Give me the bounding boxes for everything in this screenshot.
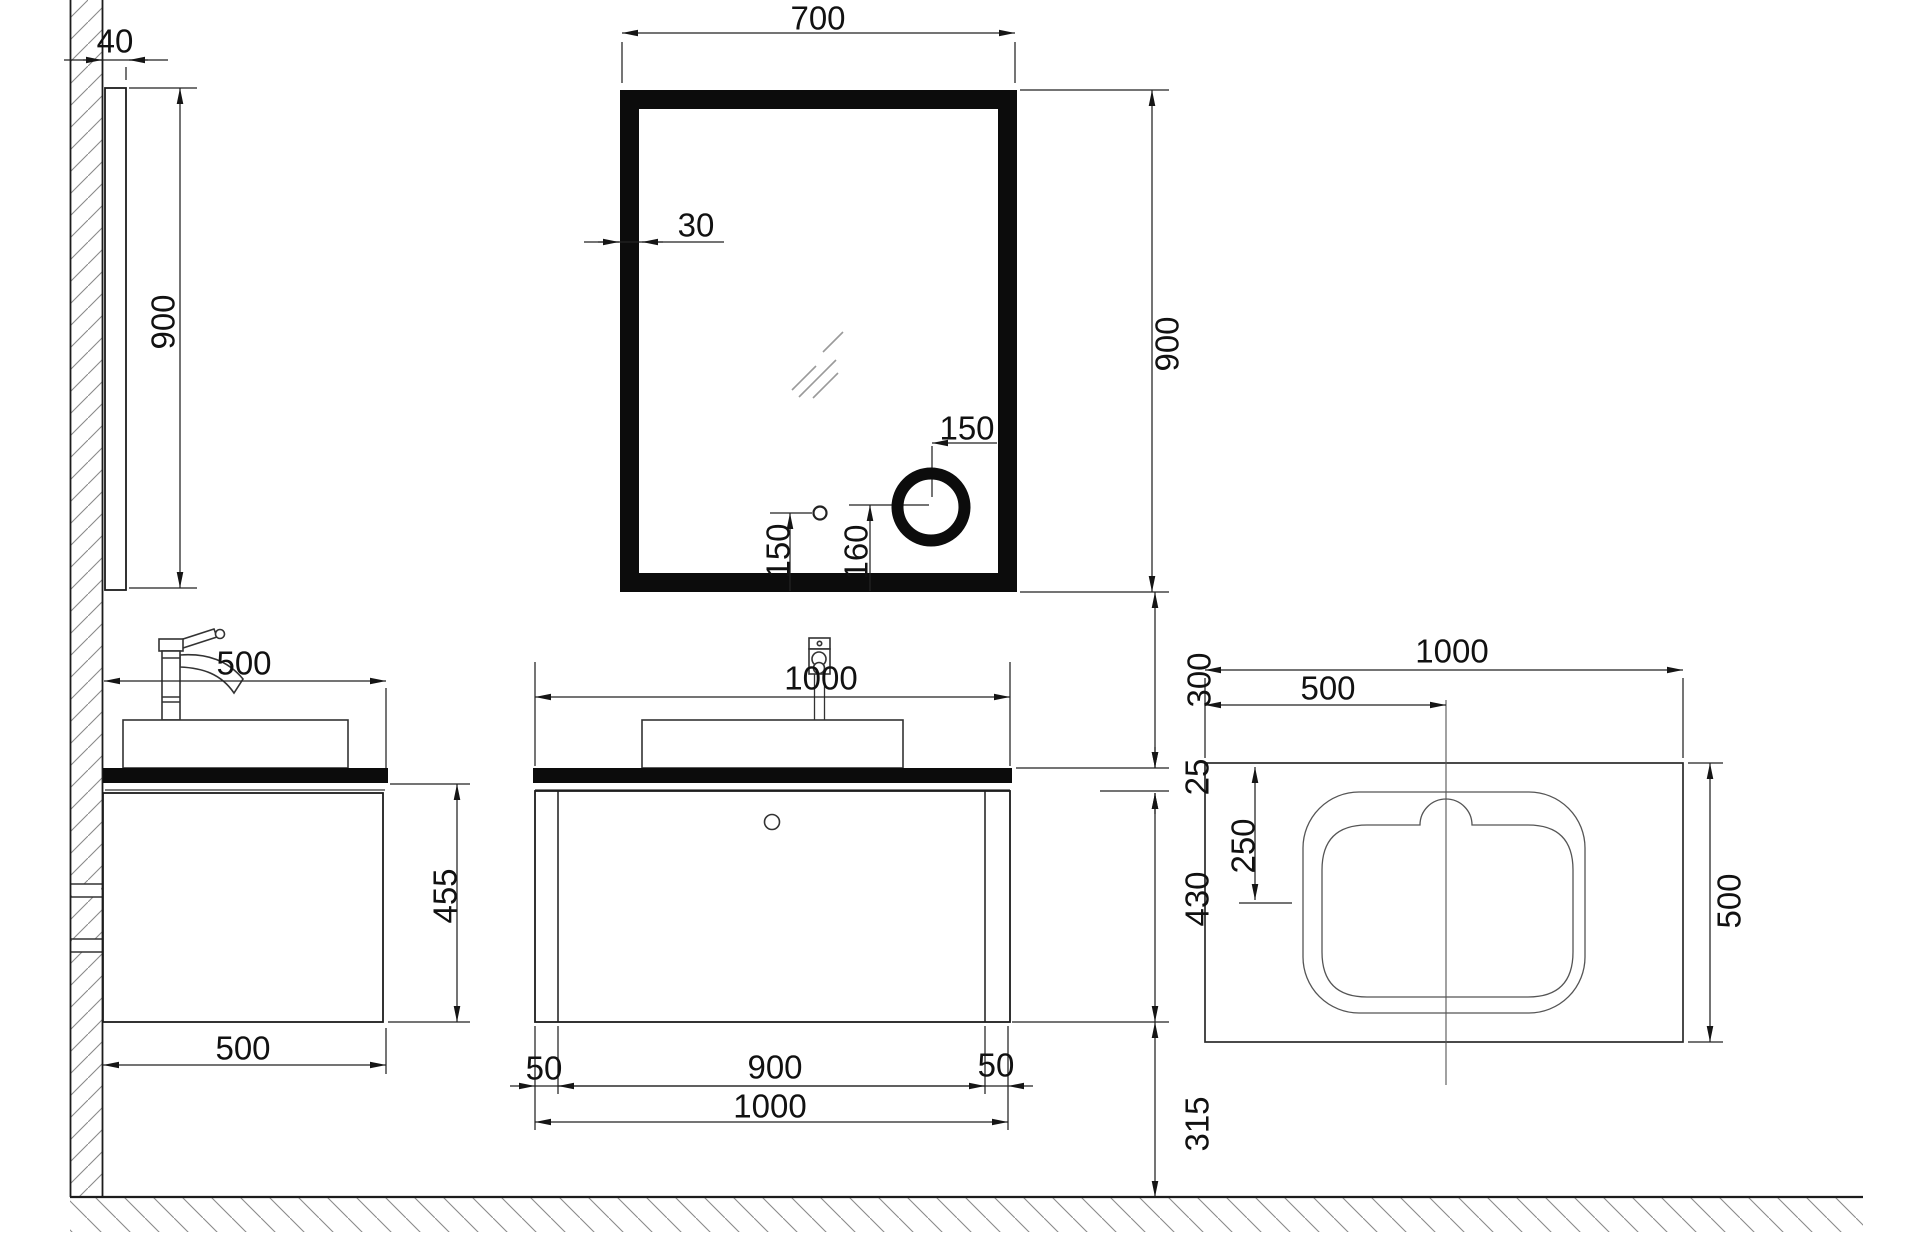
wall-section — [70, 0, 103, 1197]
dim-label-body-height: 455 — [427, 868, 464, 923]
dim-mirror-height — [1020, 90, 1169, 592]
dim-label-counter-depth: 500 — [216, 645, 271, 682]
dim-label-under-clearance: 315 — [1179, 1096, 1216, 1151]
dim-label-mirror-height: 900 — [1149, 316, 1186, 371]
dim-label-total-width: 1000 — [733, 1088, 806, 1125]
drawer-knob — [765, 815, 780, 830]
mirror-glass — [639, 109, 998, 573]
dim-label-magnifier-height: 160 — [838, 524, 875, 579]
countertop-plan-view — [1205, 700, 1683, 1085]
floor-section — [70, 1197, 1863, 1232]
dim-label-left-inset: 50 — [526, 1050, 563, 1087]
dim-label-switch-height: 150 — [760, 523, 797, 578]
technical-drawing: 40 900 700 30 900 150 150 160 500 455 50… — [0, 0, 1920, 1258]
dim-label-mirror-to-counter: 300 — [1181, 652, 1218, 707]
touch-switch — [814, 507, 827, 520]
dim-mirror-width — [622, 33, 1015, 83]
basin-side-view — [123, 720, 348, 768]
mirror-side-view — [105, 88, 126, 590]
faucet-handle — [180, 629, 217, 648]
dim-label-counter-thickness: 25 — [1179, 759, 1216, 796]
dim-plan-width — [1205, 670, 1683, 758]
vanity-side-view — [103, 629, 388, 1022]
dim-label-cabinet-height: 430 — [1179, 871, 1216, 926]
vanity-front-view — [533, 638, 1012, 1022]
dim-label-right-inset: 50 — [978, 1047, 1015, 1084]
dim-label-plan-width: 1000 — [1415, 633, 1488, 670]
countertop-side-view — [103, 768, 388, 783]
dim-label-plan-center-offset: 500 — [1300, 670, 1355, 707]
cabinet-side-view — [103, 793, 383, 1022]
dim-label-cabinet-depth: 500 — [215, 1030, 270, 1067]
drawing-canvas: 40 900 700 30 900 150 150 160 500 455 50… — [0, 0, 1920, 1258]
dim-label-mirror-side-height: 900 — [145, 294, 182, 349]
dim-label-counter-width: 1000 — [784, 660, 857, 697]
dim-label-mirror-depth: 40 — [97, 23, 134, 60]
dim-label-body-width: 900 — [747, 1049, 802, 1086]
basin-front-view — [642, 720, 903, 768]
countertop-front-view — [533, 768, 1012, 783]
dim-height-chain — [1012, 592, 1169, 1197]
dim-label-magnifier-offset: 150 — [939, 410, 994, 447]
dim-label-mirror-frame: 30 — [678, 207, 715, 244]
dim-label-plan-basin-offset: 250 — [1225, 818, 1262, 873]
dim-label-mirror-width: 700 — [790, 0, 845, 37]
dim-label-plan-depth: 500 — [1711, 873, 1748, 928]
